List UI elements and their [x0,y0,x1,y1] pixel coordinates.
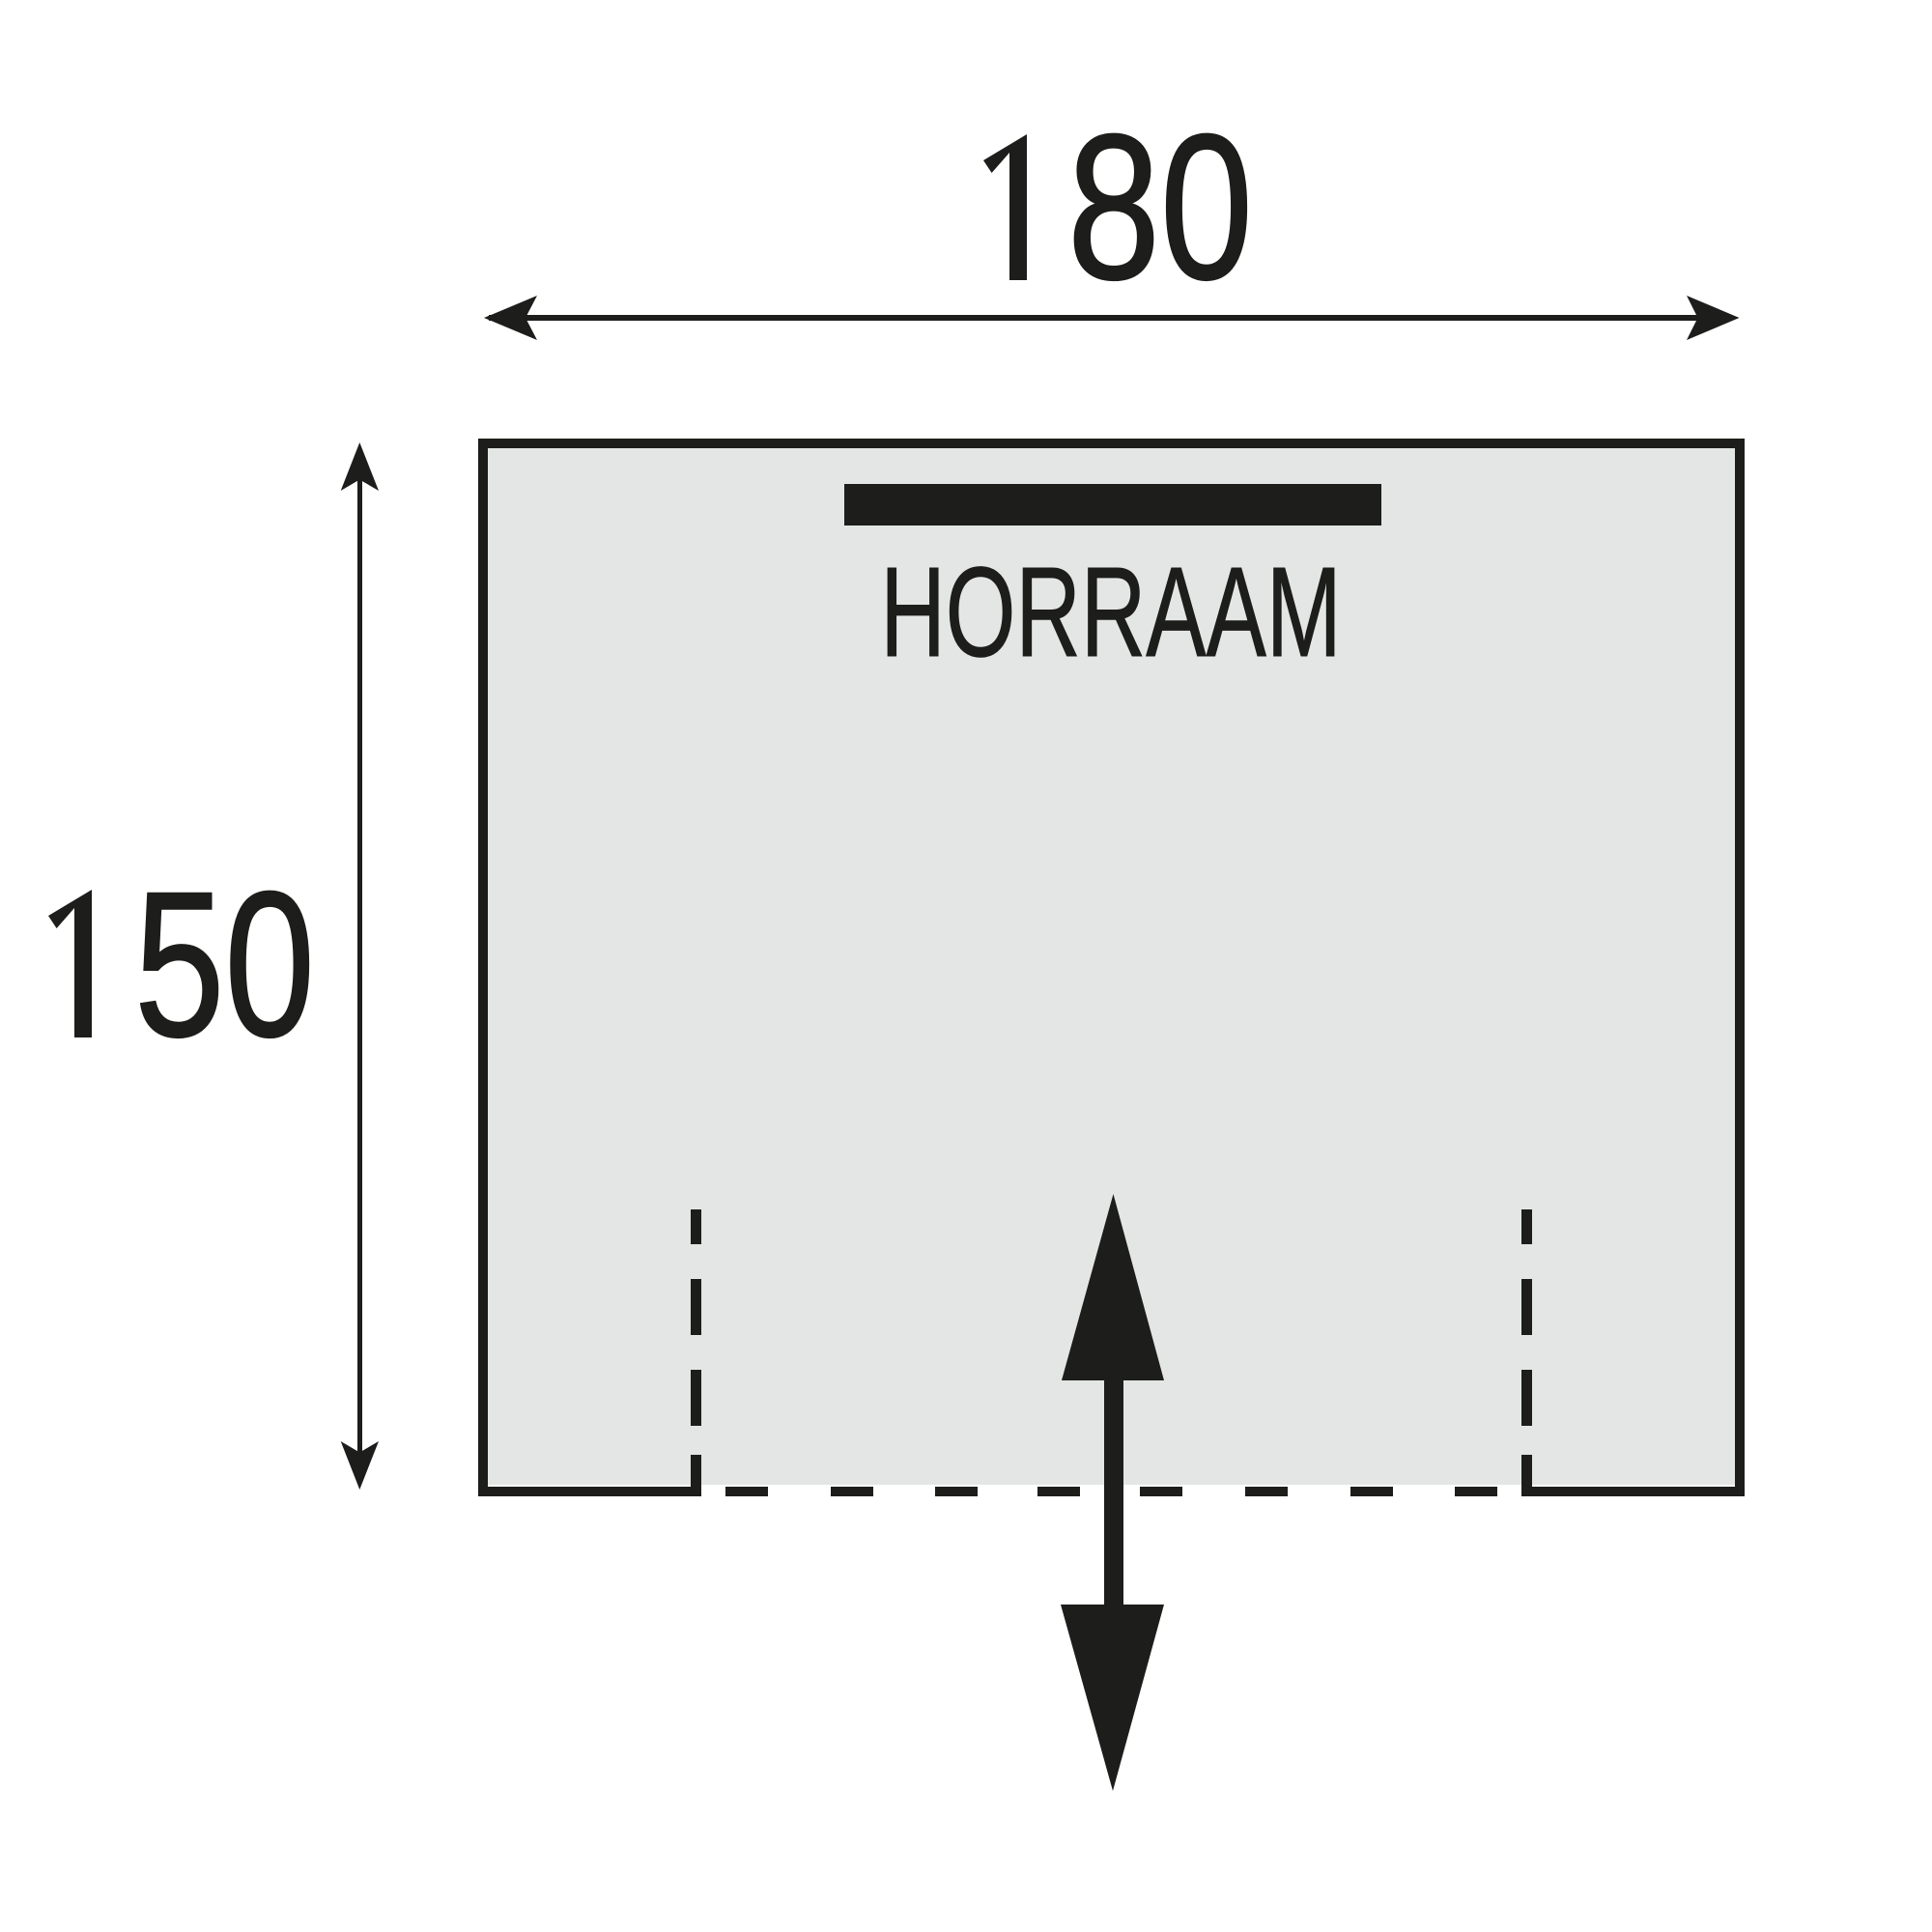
svg-text:HORRAAM: HORRAAM [880,541,1341,684]
svg-text:80: 80 [1067,92,1253,323]
svg-text:50: 50 [134,848,315,1079]
